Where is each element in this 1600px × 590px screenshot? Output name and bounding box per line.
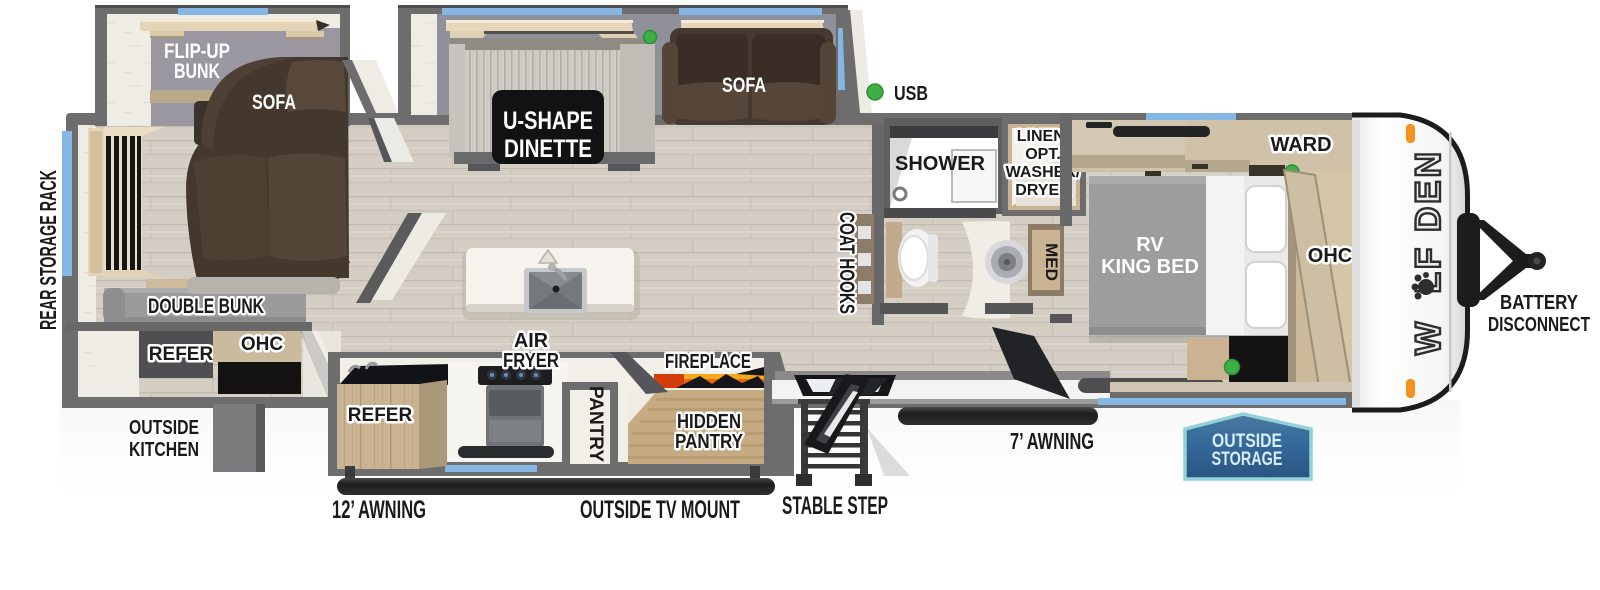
svg-text:7’ AWNING: 7’ AWNING bbox=[1010, 428, 1094, 454]
svg-text:SOFA: SOFA bbox=[252, 91, 296, 114]
svg-text:WARD: WARD bbox=[1270, 134, 1331, 156]
svg-text:U-SHAPE: U-SHAPE bbox=[503, 107, 593, 135]
svg-text:BUNK: BUNK bbox=[174, 60, 220, 83]
svg-text:SHOWER: SHOWER bbox=[895, 153, 986, 175]
svg-text:OHC: OHC bbox=[241, 334, 284, 355]
svg-text:USB: USB bbox=[894, 83, 928, 105]
svg-text:RV: RV bbox=[1136, 234, 1164, 256]
svg-text:FRYER: FRYER bbox=[503, 350, 559, 372]
svg-text:W LF DEN: W LF DEN bbox=[1409, 149, 1448, 355]
svg-text:STORAGE: STORAGE bbox=[1212, 449, 1283, 470]
svg-text:DISCONNECT: DISCONNECT bbox=[1488, 314, 1590, 336]
svg-text:BATTERY: BATTERY bbox=[1500, 292, 1579, 314]
svg-text:REFER: REFER bbox=[149, 344, 214, 365]
svg-text:FIREPLACE: FIREPLACE bbox=[665, 351, 751, 373]
svg-text:REFER: REFER bbox=[348, 405, 413, 426]
svg-text:DOUBLE BUNK: DOUBLE BUNK bbox=[148, 295, 264, 318]
svg-text:PANTRY: PANTRY bbox=[585, 386, 606, 462]
svg-text:KITCHEN: KITCHEN bbox=[129, 439, 199, 461]
svg-text:KING BED: KING BED bbox=[1101, 256, 1199, 278]
svg-text:HIDDEN: HIDDEN bbox=[677, 411, 741, 433]
svg-text:PANTRY: PANTRY bbox=[675, 431, 744, 453]
svg-text:REAR STORAGE RACK: REAR STORAGE RACK bbox=[35, 170, 61, 330]
svg-text:OUTSIDE TV MOUNT: OUTSIDE TV MOUNT bbox=[580, 496, 740, 524]
svg-text:STABLE STEP: STABLE STEP bbox=[782, 492, 888, 520]
svg-text:OHC: OHC bbox=[1308, 245, 1352, 267]
svg-text:DINETTE: DINETTE bbox=[504, 135, 592, 163]
svg-text:12’ AWNING: 12’ AWNING bbox=[332, 496, 426, 524]
svg-text:OUTSIDE: OUTSIDE bbox=[129, 417, 199, 439]
svg-text:COAT HOOKS: COAT HOOKS bbox=[835, 212, 858, 314]
svg-text:MED: MED bbox=[1042, 243, 1061, 281]
svg-text:OPT.: OPT. bbox=[1025, 146, 1061, 163]
svg-text:SOFA: SOFA bbox=[722, 74, 766, 97]
svg-text:AIR: AIR bbox=[514, 330, 549, 352]
